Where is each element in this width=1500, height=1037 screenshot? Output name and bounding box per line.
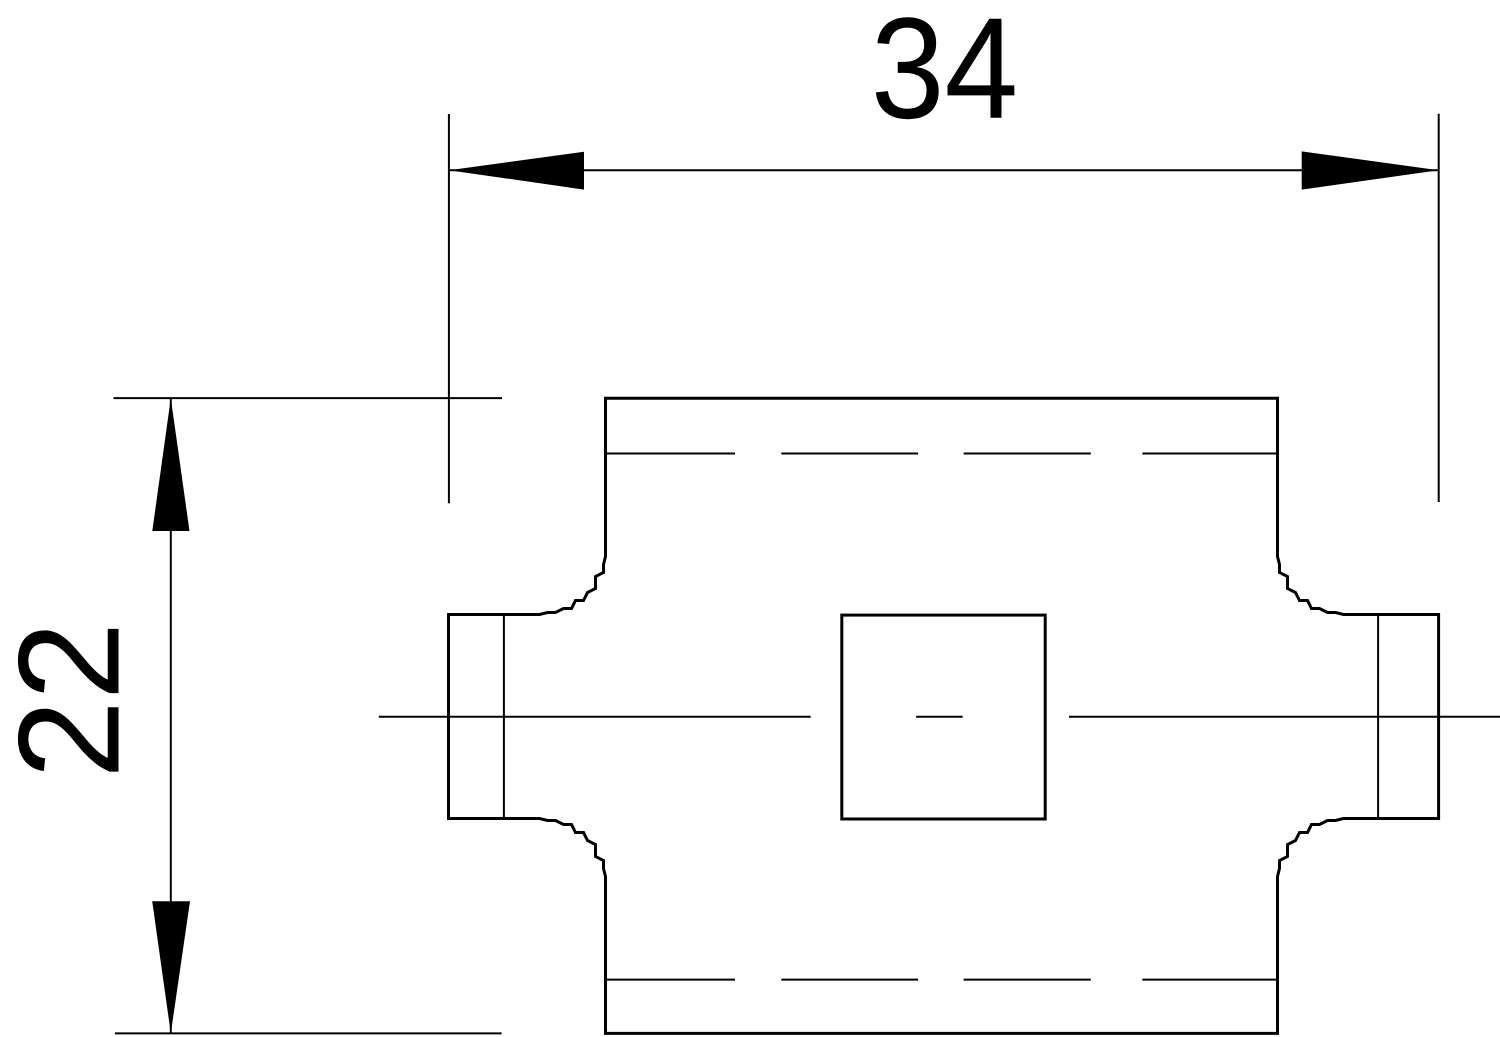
- svg-text:34: 34: [871, 0, 1018, 149]
- svg-text:22: 22: [0, 622, 150, 779]
